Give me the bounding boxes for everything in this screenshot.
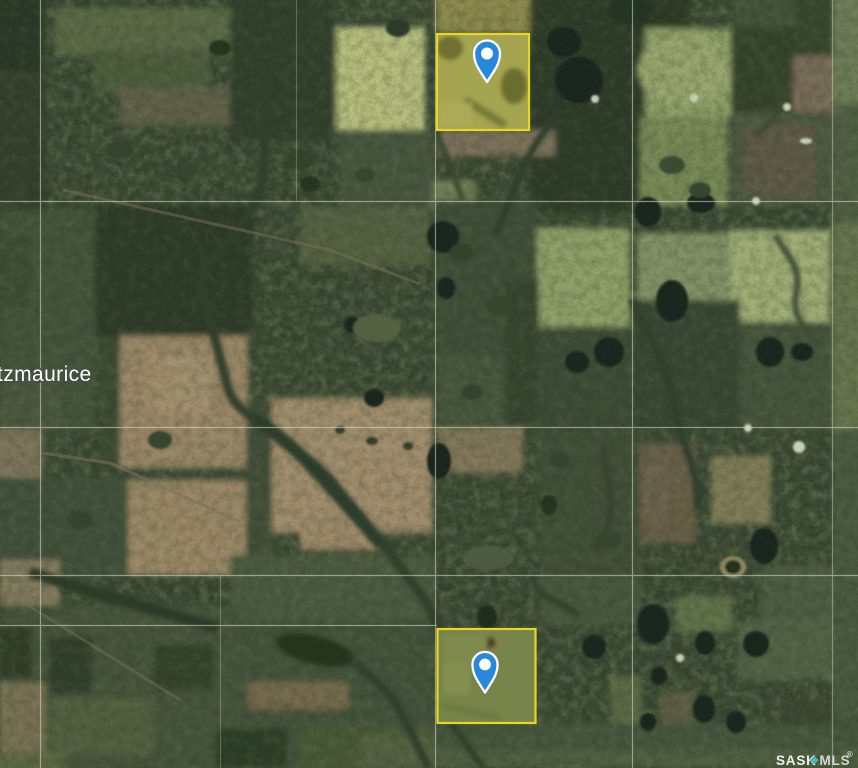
- svg-text:®: ®: [847, 749, 854, 759]
- svg-text:tzmaurice: tzmaurice: [0, 363, 92, 386]
